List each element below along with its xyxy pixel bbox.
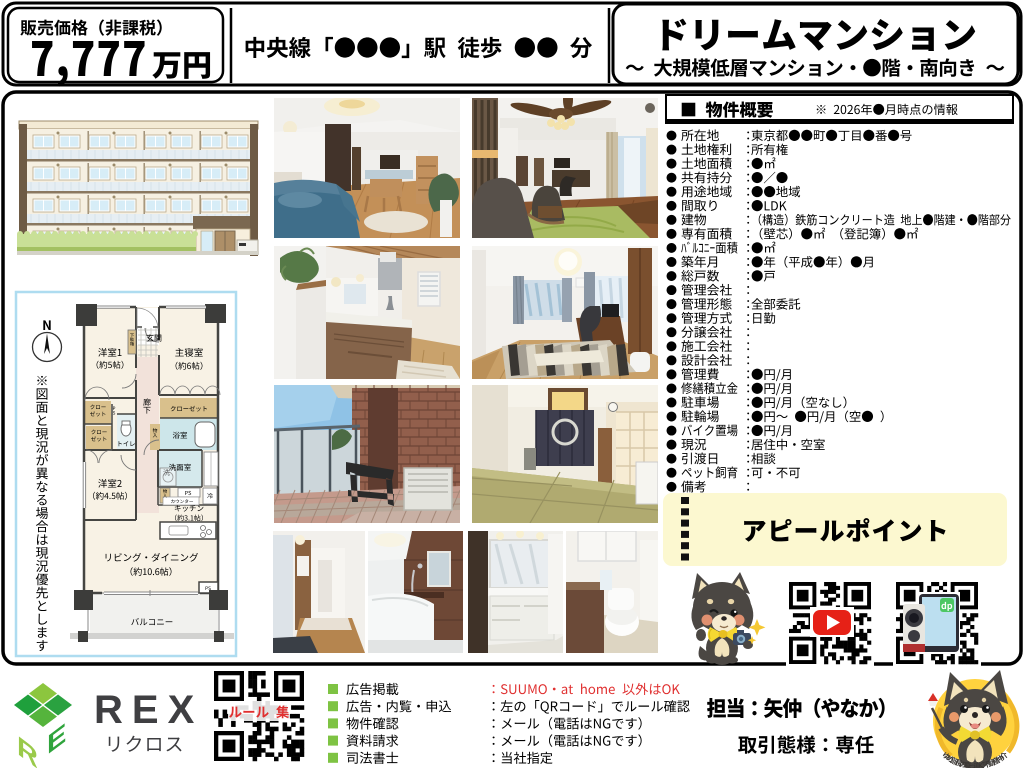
svg-text:REX: REX [94, 688, 203, 732]
svg-text:E: E [47, 716, 66, 761]
